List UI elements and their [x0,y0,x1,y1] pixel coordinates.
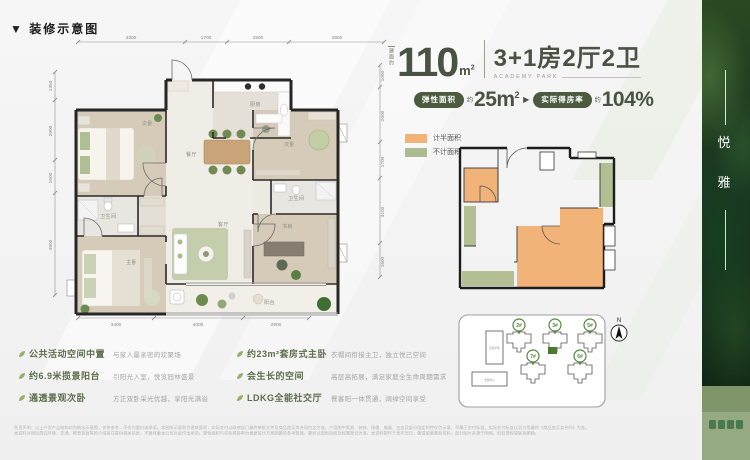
flex-area-badge: 弹性面积 [414,92,464,108]
svg-text:3800: 3800 [332,35,343,41]
feature-title: 会生长的空间 [247,369,331,382]
feature-title: 约23m²套房式主卧 [247,347,331,360]
svg-text:5#: 5# [587,323,593,329]
svg-text:1600: 1600 [48,172,54,183]
excluded-zone [464,206,476,246]
header-divider [484,40,485,78]
room-label-bed2b: 次卧 [284,141,295,148]
unit-header: 建面约 110 m2 3+1房2厅2卫 ACADEMY PARK 弹性面积 约 … [388,40,693,110]
flex-area-value: 25m2 [474,89,519,110]
svg-text:1700: 1700 [380,156,386,167]
approx-mark: 约 [595,95,601,104]
feature-item: LDKG全能社交厅 餐客阳一体贯通，阔绰空间享受 [236,391,463,404]
area-unit: m2 [459,63,474,78]
room-label-bed2a: 次卧 [142,120,153,127]
vertical-rule-bottom [725,210,726,270]
leaf-icon [18,350,26,358]
feature-title: 通透景观次卧 [29,391,113,404]
usable-ratio-badge: 实际得房率 [533,92,592,108]
svg-text:4900: 4900 [48,239,54,250]
svg-text:1350: 1350 [48,80,54,91]
disclaimer: 免责声明：以上户型产品结构均为概念示意图，仅供参考，不作为要约或承诺。本图所示面… [14,426,686,437]
leaf-photo-background [702,0,750,386]
svg-text:6#: 6# [577,354,583,360]
leaf-icon [236,372,244,380]
excluded-zone [600,163,613,207]
feature-desc: 与家人最亲密的欢聚场 [113,349,181,359]
room-label-kitchen: 厨房 [250,101,261,108]
area-prefix: 建面约 [388,46,395,68]
metric-badges: 弹性面积 约 25m2 ▶ 实际得房率 约 104% [414,89,693,110]
svg-text:N: N [617,318,621,324]
room-label-master: 主卧 [126,259,137,266]
banner-char-ya: 雅 [702,172,746,191]
svg-text:2900: 2900 [271,322,282,328]
svg-text:1700: 1700 [201,35,212,41]
north-compass-icon: N [611,318,627,341]
feature-desc: 高层高拓展，满足家庭全生命周期需求 [331,371,447,381]
vertical-rule-top [725,70,726,125]
banner-char-yue: 悦 [702,132,746,151]
room-label-bath1: 卫生间 [100,213,117,220]
green-swatch [405,148,427,157]
svg-text:2500: 2500 [253,35,264,41]
svg-text:3400: 3400 [111,322,122,328]
facility-bottom-label: 会所中心 [484,378,495,382]
svg-text:1600: 1600 [380,256,386,267]
svg-text:2900: 2900 [48,125,54,136]
room-label-study: 书房 [282,223,293,230]
feature-desc: 引阳光入室，悦览园林盛景 [113,371,195,381]
feature-desc: 衣帽间衔接主卫，独立悦己空间 [331,349,426,359]
subtitle-academy-park: ACADEMY PARK [494,74,559,80]
facility-top-label: 实验学校 [489,346,500,350]
room-label-dining: 餐厅 [186,151,197,158]
feature-title: LDKG全能社交厅 [247,391,331,404]
banner-band [702,386,750,412]
disclaimer-line1: 免责声明：以上户型产品结构均为概念示意图，仅供参考，不作为要约或承诺。本图所示面… [14,426,686,431]
feature-item: 通透景观次卧 方正双卧采光优越，享阳光满溢 [18,391,236,404]
feature-list: 公共活动空间中置 与家人最亲密的欢聚场 约6.9米揽景阳台 引阳光入室，悦览园林… [18,347,463,404]
floorplan-drawing: 次卧 厨房 餐厅 次卧 卫生间 卫生间 主卧 客厅 书房 阳台 4300 170… [26,28,394,330]
usable-ratio-value: 104% [602,89,654,110]
side-banner: 悦 雅 [702,0,750,460]
svg-text:3#: 3# [552,323,558,329]
feature-item: 约23m²套房式主卧 衣帽间衔接主卫，独立悦己空间 [236,347,463,360]
svg-text:1050: 1050 [380,70,386,81]
svg-text:4000: 4000 [193,322,204,328]
leaf-icon [236,350,244,358]
svg-text:3100: 3100 [380,206,386,217]
site-plan: 实验学校 会所中心 2# 3# 5# 7# 6# N [453,303,648,418]
disclaimer-line2: 本资料对项目周边环境、交通、教育资源等的介绍旨在提供相关信息，不意味着本公司对此… [14,431,686,436]
half-area-zone-l [517,208,603,288]
feature-desc: 方正双卧采光优越，享阳光满溢 [113,393,208,403]
feature-item: 公共活动空间中置 与家人最亲密的欢聚场 [18,347,236,360]
feature-item: 约6.9米揽景阳台 引阳光入室，悦览园林盛景 [18,369,236,382]
svg-text:4300: 4300 [126,35,137,41]
feature-title: 约6.9米揽景阳台 [29,369,113,382]
room-label-living: 客厅 [218,221,229,228]
orange-swatch [405,134,427,143]
leaf-icon [18,372,26,380]
room-label-balcony: 阳台 [264,299,275,306]
feature-item: 会生长的空间 高层高拓展，满足家庭全生命周期需求 [236,369,463,382]
feature-title: 公共活动空间中置 [29,347,113,360]
brand-logo [709,420,743,429]
subtitle-rule [562,77,641,78]
excluded-zone [462,271,514,286]
leaf-icon [18,394,26,402]
leaf-icon [236,394,244,402]
area-schematic-plan [452,130,667,305]
arrow-icon: ▶ [523,95,529,104]
brochure-page: ▼ 装修示意图 [0,0,750,460]
svg-text:2600: 2600 [380,110,386,121]
feature-desc: 餐客阳一体贯通，阔绰空间享受 [331,393,426,403]
area-value: 110 [397,46,457,80]
half-area-zone [464,168,498,202]
room-label-bath2: 卫生间 [288,195,305,202]
highlighted-unit [548,347,557,354]
approx-mark: 约 [467,95,473,104]
svg-text:2#: 2# [516,323,522,329]
svg-text:7#: 7# [530,354,536,360]
layout-text: 3+1房2厅2卫 [494,47,641,71]
